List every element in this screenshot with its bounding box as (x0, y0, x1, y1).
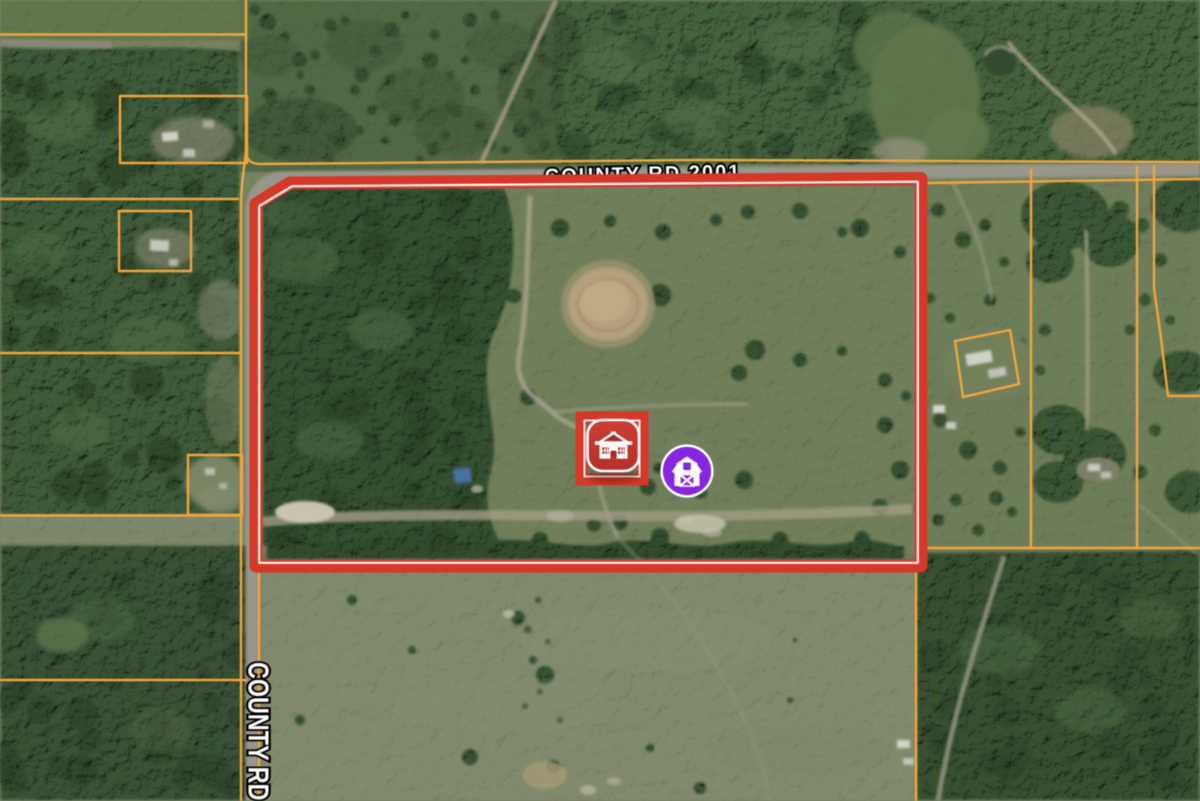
svg-text:COUNTY RD 2: COUNTY RD 2 (242, 662, 274, 801)
